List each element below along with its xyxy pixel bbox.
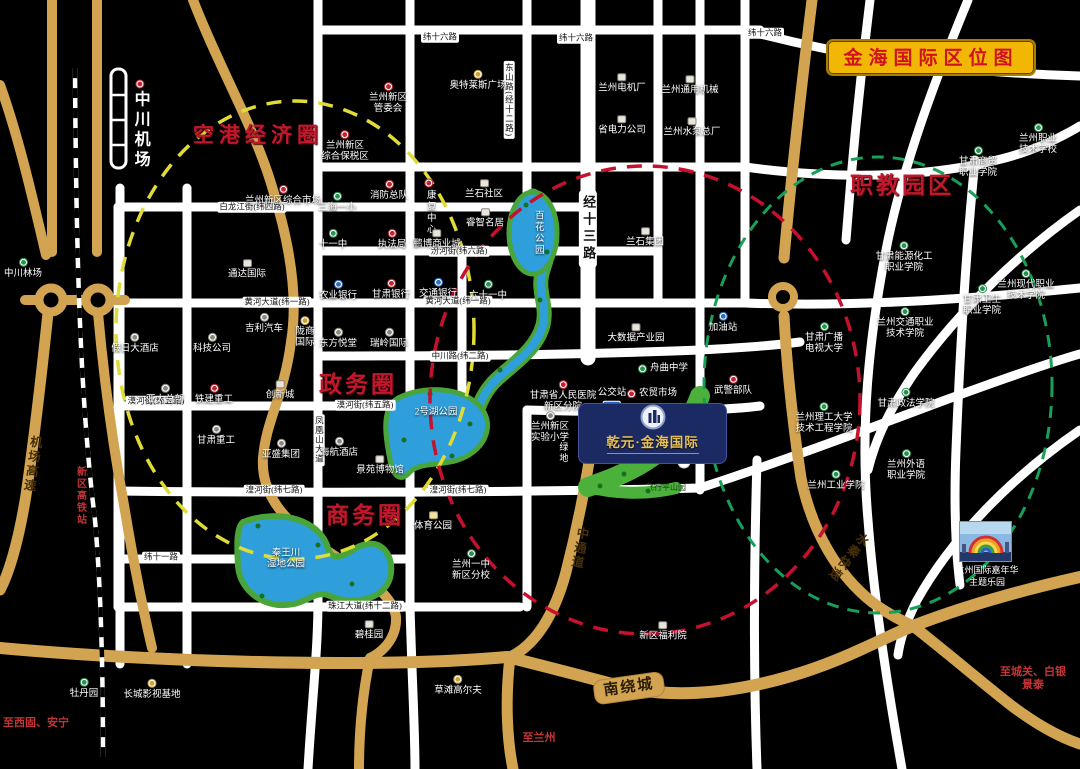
poi-label: 景苑博物馆 <box>356 455 404 476</box>
poi-text: 奥特莱斯广场 <box>449 81 506 92</box>
poi-text: 兰石社区 <box>465 189 503 200</box>
poi-text: 创新城 <box>266 390 295 401</box>
building-square-icon <box>617 73 626 81</box>
location-map: 金海国际区位图 乾元·金海国际 兰州国际嘉年华 主题乐园 中川机场 <box>0 0 1080 769</box>
direction-note: 新区高铁站 <box>73 466 88 526</box>
road-label: 纬十一路 <box>142 552 180 563</box>
poi-text: 甘肃能源化工职业学院 <box>875 252 932 275</box>
poi-text: 兰州交通职业技术学院 <box>876 318 933 341</box>
zone-label: 职教园区 <box>850 166 954 200</box>
road-label: 经十三路 <box>579 190 597 268</box>
poi-text: 景苑博物馆 <box>356 465 404 476</box>
yellow-dot-icon <box>453 675 462 684</box>
red-dot-icon <box>558 380 567 389</box>
green-dot-icon <box>483 280 492 289</box>
poi-label: 睿智名居 <box>466 208 504 229</box>
project-name: 乾元·金海国际 <box>606 431 699 451</box>
green-dot-icon <box>332 192 341 201</box>
green-dot-icon <box>900 307 909 316</box>
poi-text: 甘肃银行 <box>372 290 410 301</box>
poi-text: 兰州水泵总厂 <box>663 127 720 138</box>
poi-label: 兰州职业技术学校 <box>1019 123 1057 157</box>
poi-label: 甘肃能源化工职业学院 <box>875 241 932 275</box>
poi-label: 康复中心 <box>423 179 434 236</box>
green-dot-icon <box>1021 269 1030 278</box>
poi-label: 草滩高尔夫 <box>434 675 482 697</box>
poi-text: 省电力公司 <box>598 125 646 136</box>
poi-text: 科技公司 <box>193 344 231 355</box>
poi-label: 兰石集团 <box>626 227 664 248</box>
poi-label: 百花公园 <box>531 210 542 256</box>
photo-caption: 兰州国际嘉年华 主题乐园 <box>955 564 1018 588</box>
poi-label: 甘肃广播电视大学 <box>805 322 843 356</box>
yellow-dot-icon <box>300 316 309 325</box>
poi-text: 兰州外语职业学院 <box>887 460 925 483</box>
poi-text: 兰州新区管委会 <box>369 93 407 116</box>
project-marker: 乾元·金海国际 <box>578 403 727 464</box>
building-square-icon <box>480 208 489 216</box>
poi-label: 铁建重工 <box>195 384 233 406</box>
road-label: 中川路(纬二路) <box>430 351 491 362</box>
poi-text: 兰州一中新区分校 <box>452 560 490 583</box>
red-dot-icon <box>383 82 392 91</box>
poi-label: 科技公司 <box>193 333 231 355</box>
poi-label: 东方悦堂 <box>319 328 357 350</box>
poi-label: 鹏博商业城 <box>413 229 461 250</box>
poi-label: 农业银行 <box>319 280 357 302</box>
poi-text: 飞行平山园 <box>646 483 686 493</box>
poi-label: 交通银行 <box>419 278 457 300</box>
road-label: 湟河街(纬七路) <box>244 485 305 496</box>
poi-text: 甘肃广播电视大学 <box>805 333 843 356</box>
poi-label: 瑞岭国际 <box>370 328 408 350</box>
green-dot-icon <box>819 322 828 331</box>
poi-text: 兰州通用机械 <box>661 85 718 96</box>
road-label: 湟河街(纬七路) <box>428 485 489 496</box>
poi-text: 兰州新区综合市场 <box>245 196 321 207</box>
poi-text: 农贸市场 <box>639 388 677 399</box>
yellow-dot-icon <box>147 679 156 688</box>
white-dot-icon <box>259 313 268 322</box>
poi-label: 兰州外语职业学院 <box>887 449 925 483</box>
green-dot-icon <box>1033 123 1042 132</box>
red-dot-icon <box>278 185 287 194</box>
red-dot-icon <box>387 229 396 238</box>
white-dot-icon <box>333 328 342 337</box>
poi-text: 鹏博商业城 <box>413 239 461 250</box>
green-dot-icon <box>328 229 337 238</box>
poi-label: 海航酒店 <box>320 437 358 459</box>
road-label: 珠江大道(纬十二路) <box>326 601 404 612</box>
poi-label: 亚盛集团 <box>262 439 300 461</box>
poi-text: 公交站 <box>598 388 627 399</box>
red-dot-icon <box>728 375 737 384</box>
poi-text: 亚盛集团 <box>262 450 300 461</box>
building-square-icon <box>375 455 384 463</box>
green-dot-icon <box>18 258 27 267</box>
poi-label: 牡丹园 <box>70 678 99 700</box>
poi-label: 绿地 <box>558 442 569 464</box>
poi-label: 加油站 <box>709 312 738 334</box>
building-square-icon <box>658 621 667 629</box>
poi-text: 消防总队 <box>370 191 408 202</box>
red-dot-icon <box>340 130 349 139</box>
poi-text: 兰石集团 <box>626 237 664 248</box>
poi-text: 兰州理工大学技术工程学院 <box>795 413 852 436</box>
project-emblem-icon <box>640 404 666 430</box>
building-square-icon <box>631 323 640 331</box>
poi-text: 草滩高尔夫 <box>434 686 482 697</box>
poi-label: 2号湖公园 <box>415 407 458 418</box>
zone-label: 空港经济圈 <box>193 119 323 149</box>
white-dot-icon <box>545 411 554 420</box>
poi-label: 兰州一中新区分校 <box>452 549 490 583</box>
poi-label: 兰石社区 <box>465 179 503 200</box>
photo-thumbnail <box>959 521 1012 562</box>
poi-label: 体育公园 <box>414 511 452 532</box>
green-dot-icon <box>638 364 647 373</box>
poi-text: 兰州工业学院 <box>807 481 864 492</box>
poi-label: 执法局 <box>378 229 407 251</box>
poi-label: 消防总队 <box>370 180 408 202</box>
poi-label: 陇商国际 <box>295 316 314 350</box>
runway-icon <box>111 69 126 168</box>
poi-label: 舟曲中学 <box>638 363 688 374</box>
project-caption-rule <box>607 453 699 454</box>
poi-label: 甘肃重工 <box>197 425 235 447</box>
poi-text: 通达国际 <box>228 269 266 280</box>
direction-note: 至西固、安宁 <box>3 714 69 730</box>
poi-label: 假日大酒店 <box>111 333 159 355</box>
park-square-icon <box>428 511 437 519</box>
poi-text: 长城影视基地 <box>123 690 180 701</box>
poi-label: 甘肃卫生职业学院 <box>963 284 1001 318</box>
poi-text: 陇商国际 <box>295 327 314 350</box>
poi-text: 三海一小 <box>318 203 356 214</box>
building-square-icon <box>640 227 649 235</box>
poi-label: 新区福利院 <box>639 621 687 642</box>
red-dot-icon <box>386 279 395 288</box>
poi-label: 秦王川湿地公园 <box>267 549 305 572</box>
poi-text: 大数据产业园 <box>607 333 664 344</box>
white-dot-icon <box>160 384 169 393</box>
poi-text: 2号湖公园 <box>415 407 458 418</box>
poi-text: 铁建重工 <box>195 395 233 406</box>
white-dot-icon <box>207 333 216 342</box>
poi-text: 兰州职业技术学校 <box>1019 134 1057 157</box>
blue-dot-icon <box>333 280 342 289</box>
direction-note: 至兰州 <box>523 729 556 745</box>
poi-label: 甘肃政法学院 <box>877 388 934 410</box>
blue-dot-icon <box>718 312 727 321</box>
road-label: 漠河街(纬五路) <box>335 400 396 411</box>
map-title: 金海国际区位图 <box>826 39 1036 76</box>
poi-label: 兰州电机厂 <box>598 73 646 94</box>
poi-label: 亚太总部 <box>146 384 184 406</box>
road-label: 黄河大道(纬一路) <box>242 297 311 308</box>
poi-text: 执法局 <box>378 240 407 251</box>
poi-label: 六十一中 <box>469 280 507 302</box>
poi-text: 碧桂园 <box>355 630 384 641</box>
poi-text: 甘肃政法学院 <box>877 399 934 410</box>
red-dot-icon <box>384 180 393 189</box>
poi-text: 农业银行 <box>319 291 357 302</box>
poi-text: 新区福利院 <box>639 631 687 642</box>
poi-label: 兰州水泵总厂 <box>663 117 720 138</box>
green-dot-icon <box>831 470 840 479</box>
green-dot-icon <box>819 402 828 411</box>
building-square-icon <box>617 115 626 123</box>
poi-label: 兰州通用机械 <box>661 75 718 96</box>
poi-label: 碧桂园 <box>355 620 384 641</box>
poi-text: 吉利汽车 <box>245 324 283 335</box>
poi-text: 东方悦堂 <box>319 339 357 350</box>
building-square-icon <box>685 75 694 83</box>
poi-label: 兰州新区实验小学 <box>531 411 569 445</box>
poi-label: 兰州新区管委会 <box>369 82 407 116</box>
yellow-dot-icon <box>473 70 482 79</box>
white-dot-icon <box>334 437 343 446</box>
green-dot-icon <box>899 241 908 250</box>
poi-text: 瑞岭国际 <box>370 339 408 350</box>
poi-label: 甘肃商贸职业学院 <box>959 146 997 180</box>
poi-text: 睿智名居 <box>466 218 504 229</box>
red-dot-icon <box>209 384 218 393</box>
road-label: 纬十六路 <box>746 28 784 39</box>
green-dot-icon <box>79 678 88 687</box>
poi-label: 创新城 <box>266 380 295 401</box>
poi-text: 绿地 <box>558 442 569 464</box>
poi-label: 奥特莱斯广场 <box>449 70 506 92</box>
red-dot-icon <box>627 389 636 398</box>
poi-text: 甘肃商贸职业学院 <box>959 157 997 180</box>
poi-text: 兰州新区综合保税区 <box>321 141 369 164</box>
poi-label: 省电力公司 <box>598 115 646 136</box>
building-square-icon <box>364 620 373 628</box>
red-dot-icon <box>136 80 145 89</box>
poi-label: 长城影视基地 <box>123 679 180 701</box>
poi-label: 中川林场 <box>4 258 42 280</box>
poi-label: 兰州新区综合保税区 <box>321 130 369 164</box>
poi-label: 兰州新区综合市场 <box>245 185 321 207</box>
poi-text: 十一中 <box>319 240 348 251</box>
building-square-icon <box>432 229 441 237</box>
poi-text: 交通银行 <box>419 289 457 300</box>
poi-text: 体育公园 <box>414 521 452 532</box>
green-dot-icon <box>901 388 910 397</box>
poi-label: 兰州交通职业技术学院 <box>876 307 933 341</box>
green-dot-icon <box>973 146 982 155</box>
road-label: 纬十六路 <box>557 33 595 44</box>
poi-text: 甘肃重工 <box>197 436 235 447</box>
poi-text: 秦王川湿地公园 <box>267 549 305 572</box>
poi-label: 三海一小 <box>318 192 356 214</box>
poi-text: 六十一中 <box>469 291 507 302</box>
poi-text: 假日大酒店 <box>111 344 159 355</box>
white-dot-icon <box>276 439 285 448</box>
blue-dot-icon <box>433 278 442 287</box>
poi-text: 牡丹园 <box>70 689 99 700</box>
poi-label: 兰州理工大学技术工程学院 <box>795 402 852 436</box>
poi-text: 海航酒店 <box>320 448 358 459</box>
building-square-icon <box>275 380 284 388</box>
white-dot-icon <box>211 425 220 434</box>
poi-label: 飞行平山园 <box>646 483 686 493</box>
poi-label: 通达国际 <box>228 259 266 280</box>
white-dot-icon <box>384 328 393 337</box>
poi-label: 兰州现代职业技术学院 <box>997 269 1054 303</box>
airport-label: 中川机场 <box>130 80 149 171</box>
poi-label: 吉利汽车 <box>245 313 283 335</box>
zone-label: 商务圈 <box>326 496 404 530</box>
poi-label: 甘肃银行 <box>372 279 410 301</box>
green-dot-icon <box>466 549 475 558</box>
poi-text: 加油站 <box>709 323 738 334</box>
building-square-icon <box>242 259 251 267</box>
direction-note: 景泰 <box>1022 676 1044 692</box>
poi-text: 兰州电机厂 <box>598 83 646 94</box>
building-square-icon <box>687 117 696 125</box>
poi-text: 甘肃卫生职业学院 <box>963 295 1001 318</box>
poi-text: 兰州现代职业技术学院 <box>997 280 1054 303</box>
poi-label: 武警部队 <box>714 375 752 397</box>
white-dot-icon <box>130 333 139 342</box>
green-dot-icon <box>977 284 986 293</box>
poi-label: 大数据产业园 <box>607 323 664 344</box>
poi-text: 舟曲中学 <box>650 363 688 374</box>
green-dot-icon <box>901 449 910 458</box>
poi-text: 亚太总部 <box>146 395 184 406</box>
poi-text: 中川林场 <box>4 269 42 280</box>
poi-text: 中川机场 <box>130 91 149 171</box>
poi-text: 百花公园 <box>531 210 542 256</box>
zone-label: 政务圈 <box>319 365 397 399</box>
poi-text: 武警部队 <box>714 386 752 397</box>
poi-label: 十一中 <box>319 229 348 251</box>
building-square-icon <box>479 179 488 187</box>
poi-label: 农贸市场 <box>627 388 677 399</box>
red-dot-icon <box>424 179 433 188</box>
poi-label: 兰州工业学院 <box>807 470 864 492</box>
road-label: 纬十六路 <box>421 32 459 43</box>
